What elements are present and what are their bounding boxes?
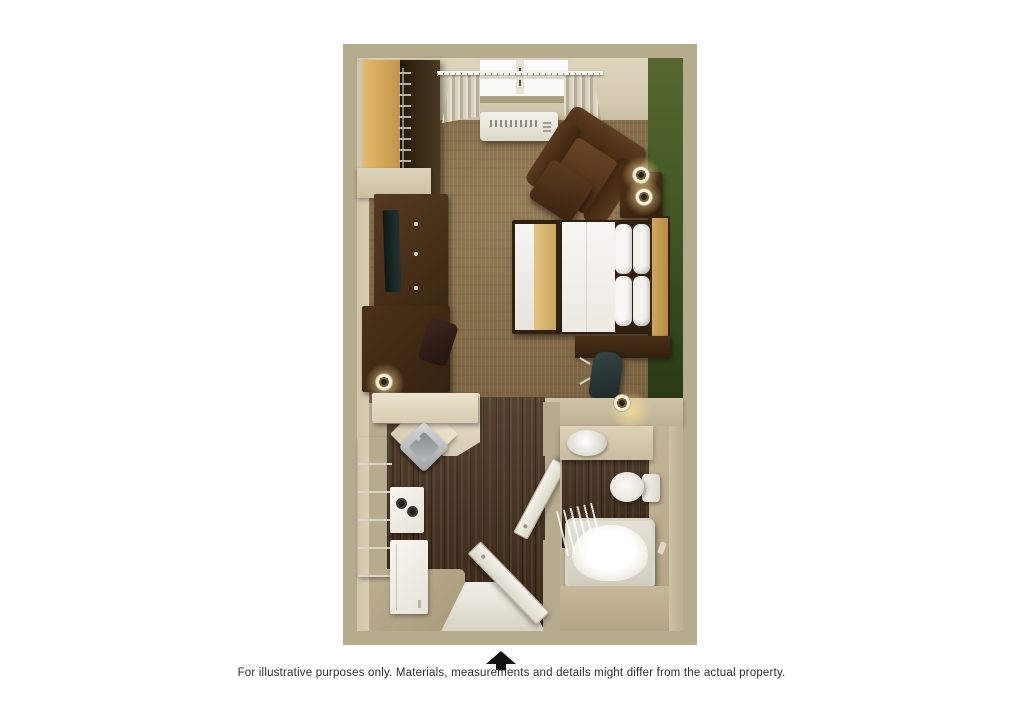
toilet	[610, 472, 644, 502]
curtain-hooks	[437, 73, 603, 76]
headboard	[650, 216, 670, 342]
hangers	[399, 72, 411, 164]
bathroom-sink	[567, 430, 607, 456]
desk	[575, 336, 670, 358]
bed-duvet	[562, 222, 615, 332]
pillow	[615, 224, 632, 274]
tv-dresser	[374, 194, 448, 308]
closet-shelf	[363, 60, 400, 168]
appliance-door-seam	[396, 544, 397, 610]
dresser-knob	[414, 286, 418, 290]
disclaimer-text: For illustrative purposes only. Material…	[0, 667, 1023, 679]
door-knob	[523, 524, 528, 529]
window	[478, 58, 570, 100]
bed	[512, 218, 666, 336]
bathroom-tile-floor	[560, 586, 669, 631]
bed-runner	[534, 224, 556, 330]
bathroom-right-wall-face	[669, 426, 683, 631]
pillow	[633, 276, 650, 326]
desk-lamp	[375, 373, 393, 391]
pillow	[633, 224, 650, 274]
partition-wall	[543, 402, 560, 456]
tv	[383, 210, 402, 293]
appliance-handle	[418, 600, 421, 608]
refrigerator-cabinets	[358, 437, 392, 577]
table-lamp	[635, 188, 653, 206]
door-knob	[480, 554, 486, 560]
window-latch	[519, 80, 521, 86]
toilet-tank	[642, 474, 660, 502]
kitchen-counter	[372, 393, 478, 423]
stove-burner	[396, 498, 407, 509]
pillow	[615, 276, 632, 326]
partition-wall	[543, 540, 560, 631]
ledge-lamp	[613, 394, 631, 412]
dresser-knob	[414, 252, 418, 256]
ac-side-vent	[543, 120, 551, 132]
ac-unit	[480, 112, 558, 141]
stove-burner	[407, 506, 418, 517]
ac-vent-grille	[490, 120, 540, 127]
window-pane-divider	[480, 77, 564, 79]
dresser-knob	[414, 222, 418, 226]
floor-plan	[343, 44, 697, 645]
floor-plan-page: For illustrative purposes only. Material…	[0, 0, 1023, 716]
bed-foot-fold	[515, 224, 534, 330]
dishwasher	[390, 540, 428, 614]
duvet-crease	[586, 222, 587, 332]
window-sill	[476, 96, 568, 103]
stove	[390, 487, 424, 533]
